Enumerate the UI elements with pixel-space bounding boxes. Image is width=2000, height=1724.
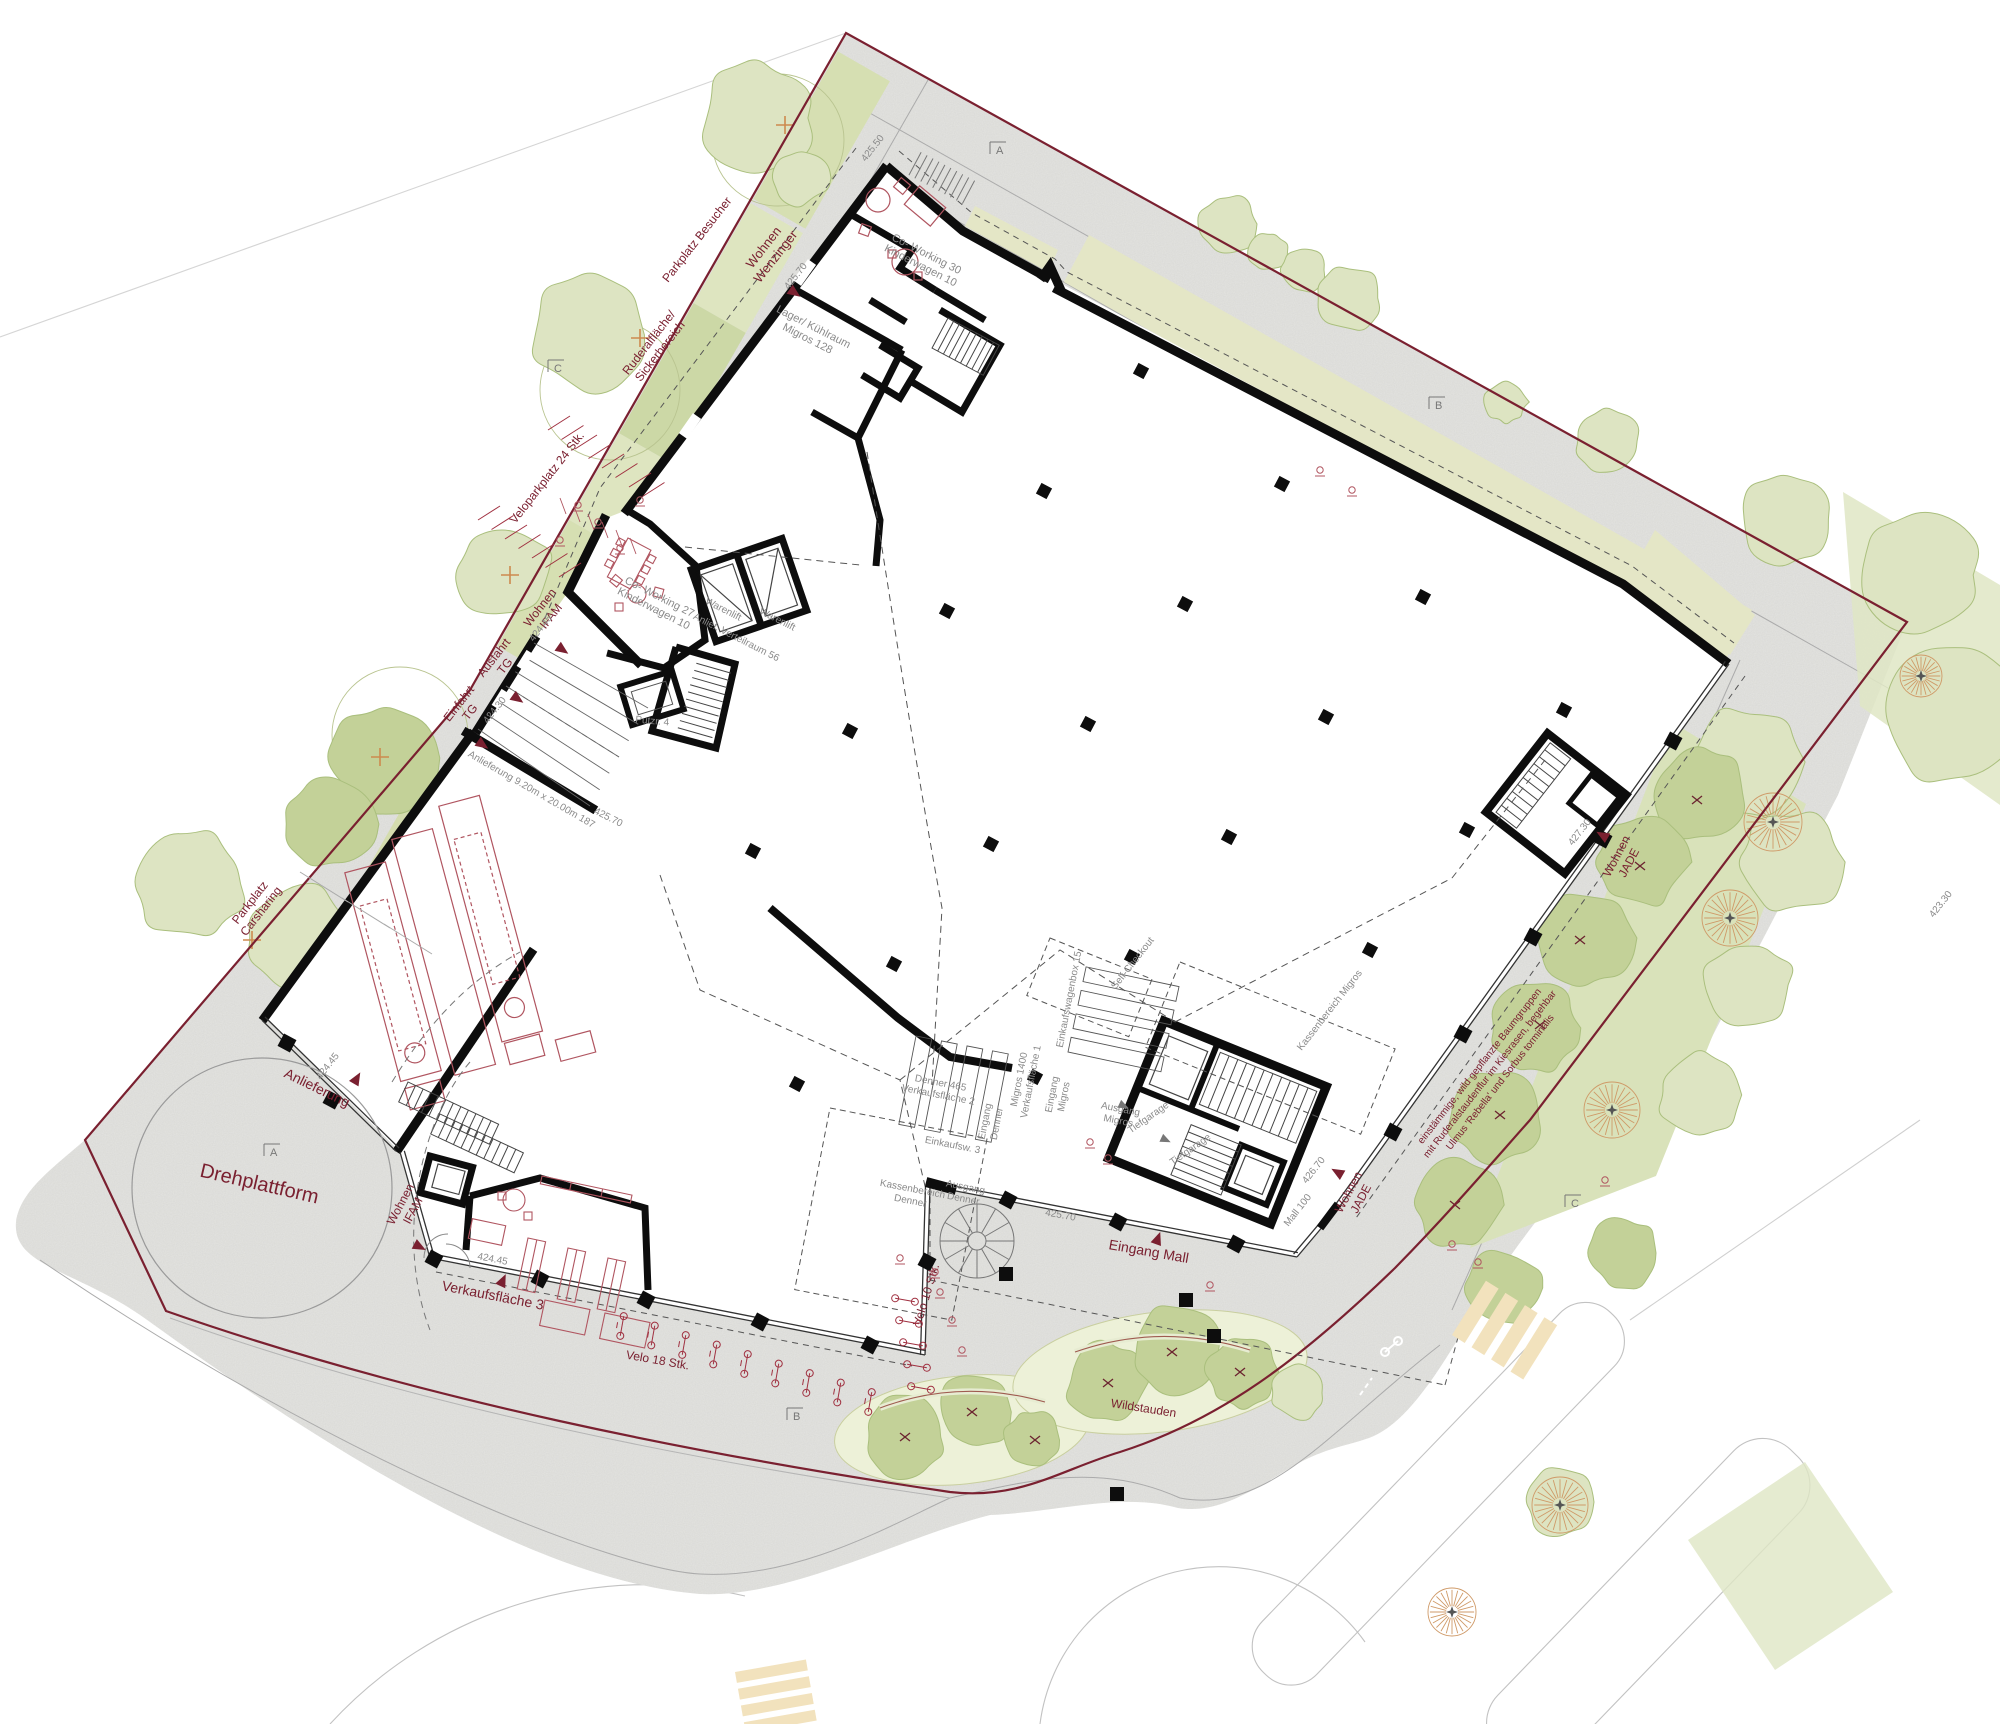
- svg-text:A: A: [996, 145, 1004, 157]
- svg-text:C: C: [554, 363, 562, 375]
- svg-text:C: C: [1571, 1198, 1579, 1210]
- svg-text:B: B: [793, 1411, 800, 1423]
- svg-text:A: A: [270, 1147, 278, 1159]
- svg-text:B: B: [1435, 400, 1442, 412]
